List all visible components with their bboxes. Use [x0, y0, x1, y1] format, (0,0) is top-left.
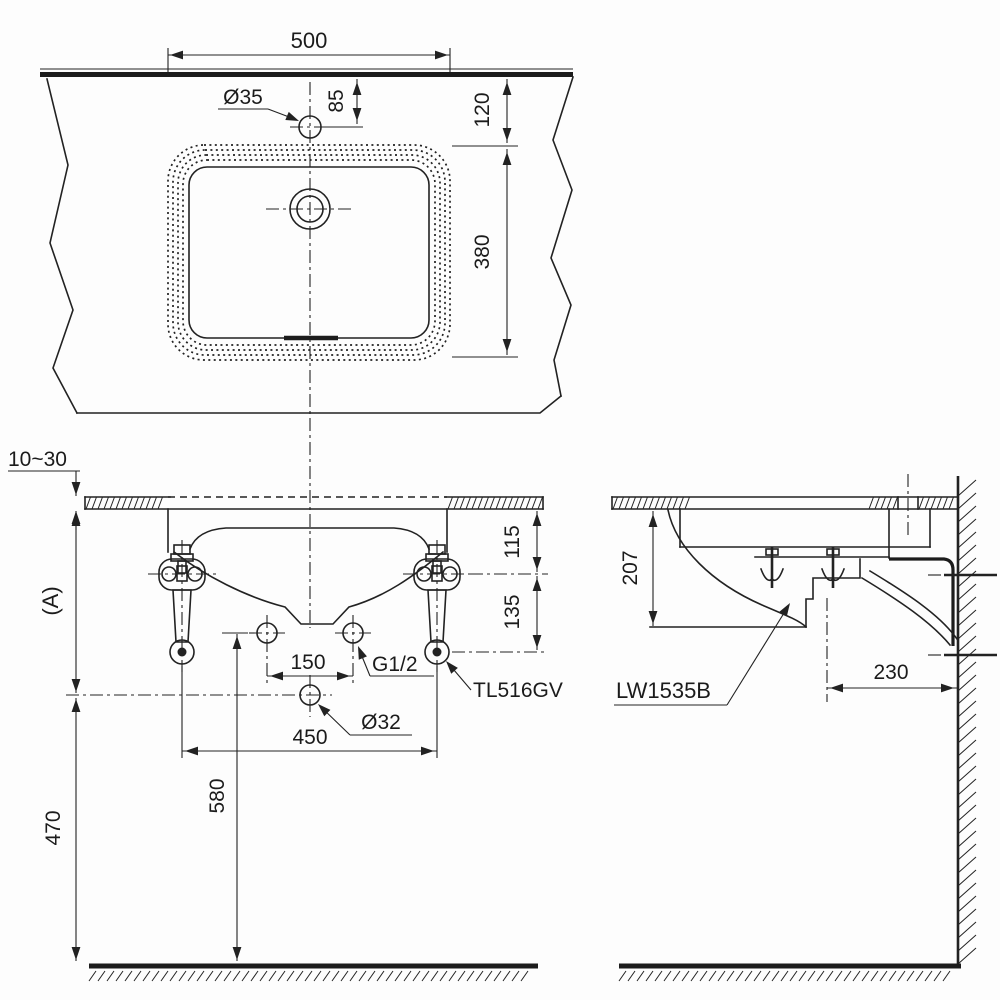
dim-207: 207: [619, 511, 657, 626]
dim-500-label: 500: [291, 28, 328, 53]
dim-207-label: 207: [619, 550, 642, 585]
dim-580-label: 580: [206, 778, 229, 813]
dim-150: 150: [267, 651, 353, 680]
dim-580: 580: [206, 633, 248, 961]
faucet-hole-callout: Ø35: [218, 86, 301, 125]
dim-A-label: (A): [38, 586, 63, 615]
technical-drawing-page: 500 Ø35 85 120: [0, 0, 1000, 1000]
drain-hole-front: [66, 675, 332, 717]
wall-stub-markers: [928, 575, 997, 655]
counter-break-line-right: [551, 77, 573, 396]
dim-230-label: 230: [873, 661, 908, 684]
front-view: 10~30 (A) 470 115: [8, 448, 563, 966]
g12-label: G1/2: [372, 653, 418, 676]
dim-150-label: 150: [290, 651, 325, 674]
dim-450-label: 450: [292, 726, 327, 749]
dim-380: 380: [452, 149, 518, 357]
tl516gv-label: TL516GV: [473, 679, 563, 702]
dim-135: 135: [501, 576, 541, 650]
dim-120-label: 120: [471, 92, 494, 127]
dim-85-label: 85: [325, 89, 348, 112]
d32-label: Ø32: [361, 711, 401, 734]
dim-380-label: 380: [471, 234, 494, 269]
basin-rim-dotted: [168, 145, 450, 360]
basin-side-profile: [650, 509, 957, 646]
fixing-bolt-1: [761, 547, 783, 588]
counter-break-line-left: [47, 79, 77, 413]
lw1535b-label: LW1535B: [616, 678, 711, 703]
dim-135-label: 135: [501, 594, 524, 629]
bracket-callout: TL516GV: [443, 658, 563, 702]
dim-115: 115: [501, 511, 541, 572]
dim-counter-thickness: 10~30: [8, 448, 80, 530]
washbasin-installation-drawing: 500 Ø35 85 120: [0, 0, 1000, 1000]
drain-pipe-to-wall: [889, 559, 953, 646]
dim-115-label: 115: [501, 525, 524, 558]
dim-470: 470: [42, 698, 80, 961]
faucet-hole-diameter-label: Ø35: [223, 86, 263, 109]
drain-diameter-callout: Ø32: [315, 701, 412, 735]
fixing-bolt-2: [822, 547, 844, 588]
side-view: 207 230 LW1535B: [612, 474, 997, 966]
basin-front-profile: [168, 509, 447, 624]
section-hatching: [86, 480, 976, 981]
supply-thread-callout: G1/2: [354, 644, 434, 676]
dim-A: (A): [38, 513, 80, 693]
product-callout: LW1535B: [614, 601, 794, 705]
top-view: 500 Ø35 85 120: [40, 28, 573, 628]
dim-500: 500: [168, 28, 450, 72]
dim-230: 230: [827, 598, 957, 702]
dim-10-30-label: 10~30: [8, 448, 67, 471]
dim-120: 120: [452, 79, 518, 146]
dim-85: 85: [324, 79, 363, 127]
dim-470-label: 470: [42, 810, 65, 845]
mounting-bracket-left: [148, 540, 216, 672]
